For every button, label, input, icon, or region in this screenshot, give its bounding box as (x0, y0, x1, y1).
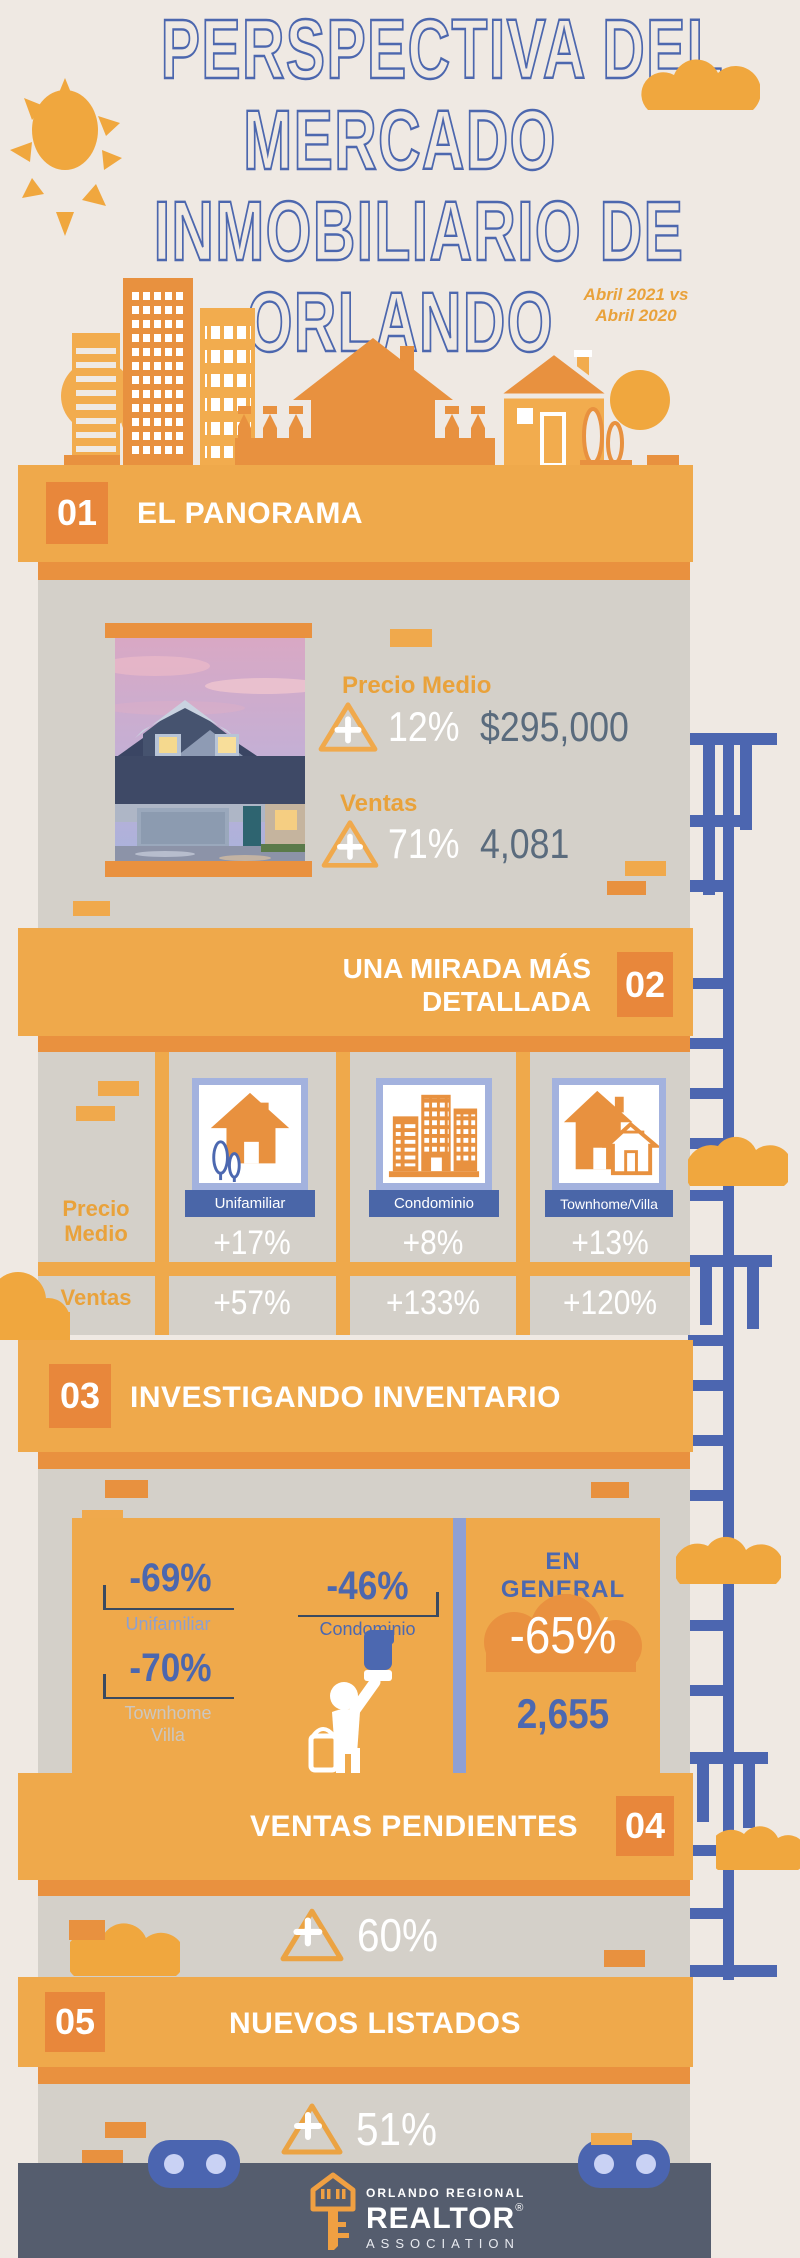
footer-org-top: ORLANDO REGIONAL (366, 2186, 525, 2200)
ribbon-condominio: Condominio (369, 1190, 499, 1217)
card-unifamiliar (192, 1078, 308, 1190)
footer-org-text: ORLANDO REGIONAL REALTOR® ASSOCIATION (366, 2186, 525, 2251)
section-title-detallada: UNA MIRADA MÁS DETALLADA (100, 952, 591, 1018)
wheel-hub (206, 2154, 226, 2174)
confetti-rect (625, 861, 666, 876)
realtor-key-logo-icon (310, 2172, 356, 2250)
confetti-rect (98, 1081, 139, 1096)
photo-bottom-bar (105, 861, 312, 877)
ribbon-unifamiliar: Unifamiliar (185, 1190, 315, 1217)
confetti-rect (607, 881, 646, 895)
card-condominio (376, 1078, 492, 1190)
condo-buildings-icon (383, 1085, 485, 1183)
section-title-listados: NUEVOS LISTADOS (130, 2007, 620, 2041)
cloud-icon (676, 1522, 781, 1584)
cloud-icon (716, 1812, 800, 1870)
confetti-rect (591, 1482, 629, 1498)
precio-medio-row: 12% $295,000 (316, 700, 655, 754)
ribbon-townhome-villa: Townhome/Villa (545, 1190, 673, 1217)
footer-org-main: REALTOR (366, 2202, 515, 2235)
title-line-3: INMOBILIARIO DE (154, 186, 685, 277)
truck-wheel-icon (578, 2140, 670, 2188)
underline-bracket (103, 1674, 234, 1699)
wheel-hub (594, 2154, 614, 2174)
card-townhome-villa (552, 1078, 666, 1190)
cloud-icon (688, 1124, 788, 1186)
grid-divider (155, 1052, 169, 1335)
ventas-label: Ventas (340, 790, 417, 818)
detallada-title-line-1: UNA MIRADA MÁS (100, 952, 591, 985)
section-number-01: 01 (46, 482, 108, 544)
townhome-villa-icon (559, 1085, 659, 1183)
title-line-2: MERCADO (243, 95, 557, 186)
house-photo (115, 638, 305, 862)
photo-top-bar (105, 623, 312, 638)
section-number-05: 05 (45, 1992, 105, 2052)
row-label-precio-medio: Precio Medio (40, 1196, 152, 1246)
footer-org-reg: ® (515, 2202, 523, 2214)
precio-unifamiliar: +17% (179, 1224, 325, 1263)
ladder-scaffold-illustration (685, 730, 780, 1980)
city-skyline-illustration (55, 278, 680, 465)
sun-icon (10, 78, 135, 238)
pendientes-stat-row: 60% (38, 1902, 690, 1968)
confetti-rect (73, 901, 110, 916)
section-number-04: 04 (616, 1796, 674, 1856)
inventario-unifamiliar-label: Unifamiliar (98, 1613, 238, 1635)
underline-bracket (298, 1592, 439, 1617)
wheel-hub (636, 2154, 656, 2174)
ribbon-label: Townhome/Villa (560, 1196, 658, 1212)
listados-pct: 51% (356, 2102, 437, 2156)
ventas-row: 71% 4,081 (320, 818, 585, 870)
inventario-divider (453, 1518, 466, 1778)
pendientes-pct: 60% (357, 1908, 438, 1962)
precio-medio-label: Precio Medio (342, 672, 491, 700)
grid-divider-horizontal (38, 1262, 690, 1276)
increase-triangle-icon (280, 2101, 344, 2157)
ribbon-label: Condominio (394, 1195, 474, 1212)
precio-townhome: +13% (540, 1224, 681, 1263)
confetti-rect (390, 629, 432, 647)
section-title-panorama: EL PANORAMA (137, 497, 363, 531)
ventas-value: 4,081 (480, 820, 569, 868)
precio-medio-value: $295,000 (480, 703, 629, 751)
footer-org-bottom: ASSOCIATION (366, 2236, 525, 2251)
increase-triangle-icon (320, 818, 380, 870)
precio-medio-pct: 12% (388, 703, 459, 751)
truck-wheel-icon (148, 2140, 240, 2188)
confetti-rect (591, 2133, 632, 2145)
underline-bracket (103, 1585, 234, 1610)
precio-condominio: +8% (360, 1224, 506, 1263)
grid-divider (516, 1052, 530, 1335)
grid-divider (336, 1052, 350, 1335)
banner-shadow (38, 1452, 690, 1469)
section-number-02: 02 (617, 952, 673, 1017)
ventas-pct: 71% (388, 820, 459, 868)
infographic-canvas: PERSPECTIVA DEL MERCADO INMOBILIARIO DE … (0, 0, 800, 2258)
confetti-rect (76, 1106, 115, 1121)
banner-shadow (38, 1880, 690, 1896)
increase-triangle-icon (279, 1906, 345, 1964)
overall-total: 2,655 (478, 1690, 649, 1738)
painter-figure-illustration (308, 1630, 408, 1778)
banner-shadow (38, 2067, 690, 2084)
increase-triangle-icon (316, 700, 380, 754)
detallada-title-line-2: DETALLADA (100, 985, 591, 1018)
banner-shadow (38, 562, 690, 580)
ventas-townhome: +120% (540, 1284, 681, 1323)
wheel-hub (164, 2154, 184, 2174)
confetti-rect (105, 1480, 148, 1498)
single-family-house-icon (199, 1085, 301, 1183)
ribbon-label: Unifamiliar (215, 1195, 286, 1212)
ventas-condominio: +133% (360, 1284, 506, 1323)
section-title-pendientes: VENTAS PENDIENTES (150, 1810, 578, 1844)
row-label-ventas: Ventas (40, 1285, 152, 1310)
section-number-03: 03 (49, 1364, 111, 1428)
inventario-townhome-label: Townhome Villa (113, 1702, 223, 1746)
house-photo-frame (105, 623, 312, 877)
ventas-unifamiliar: +57% (179, 1284, 325, 1323)
overall-pct: -65% (478, 1606, 649, 1666)
cloud-icon (640, 55, 760, 110)
section-title-inventario: INVESTIGANDO INVENTARIO (130, 1381, 561, 1415)
banner-shadow (38, 1036, 690, 1052)
